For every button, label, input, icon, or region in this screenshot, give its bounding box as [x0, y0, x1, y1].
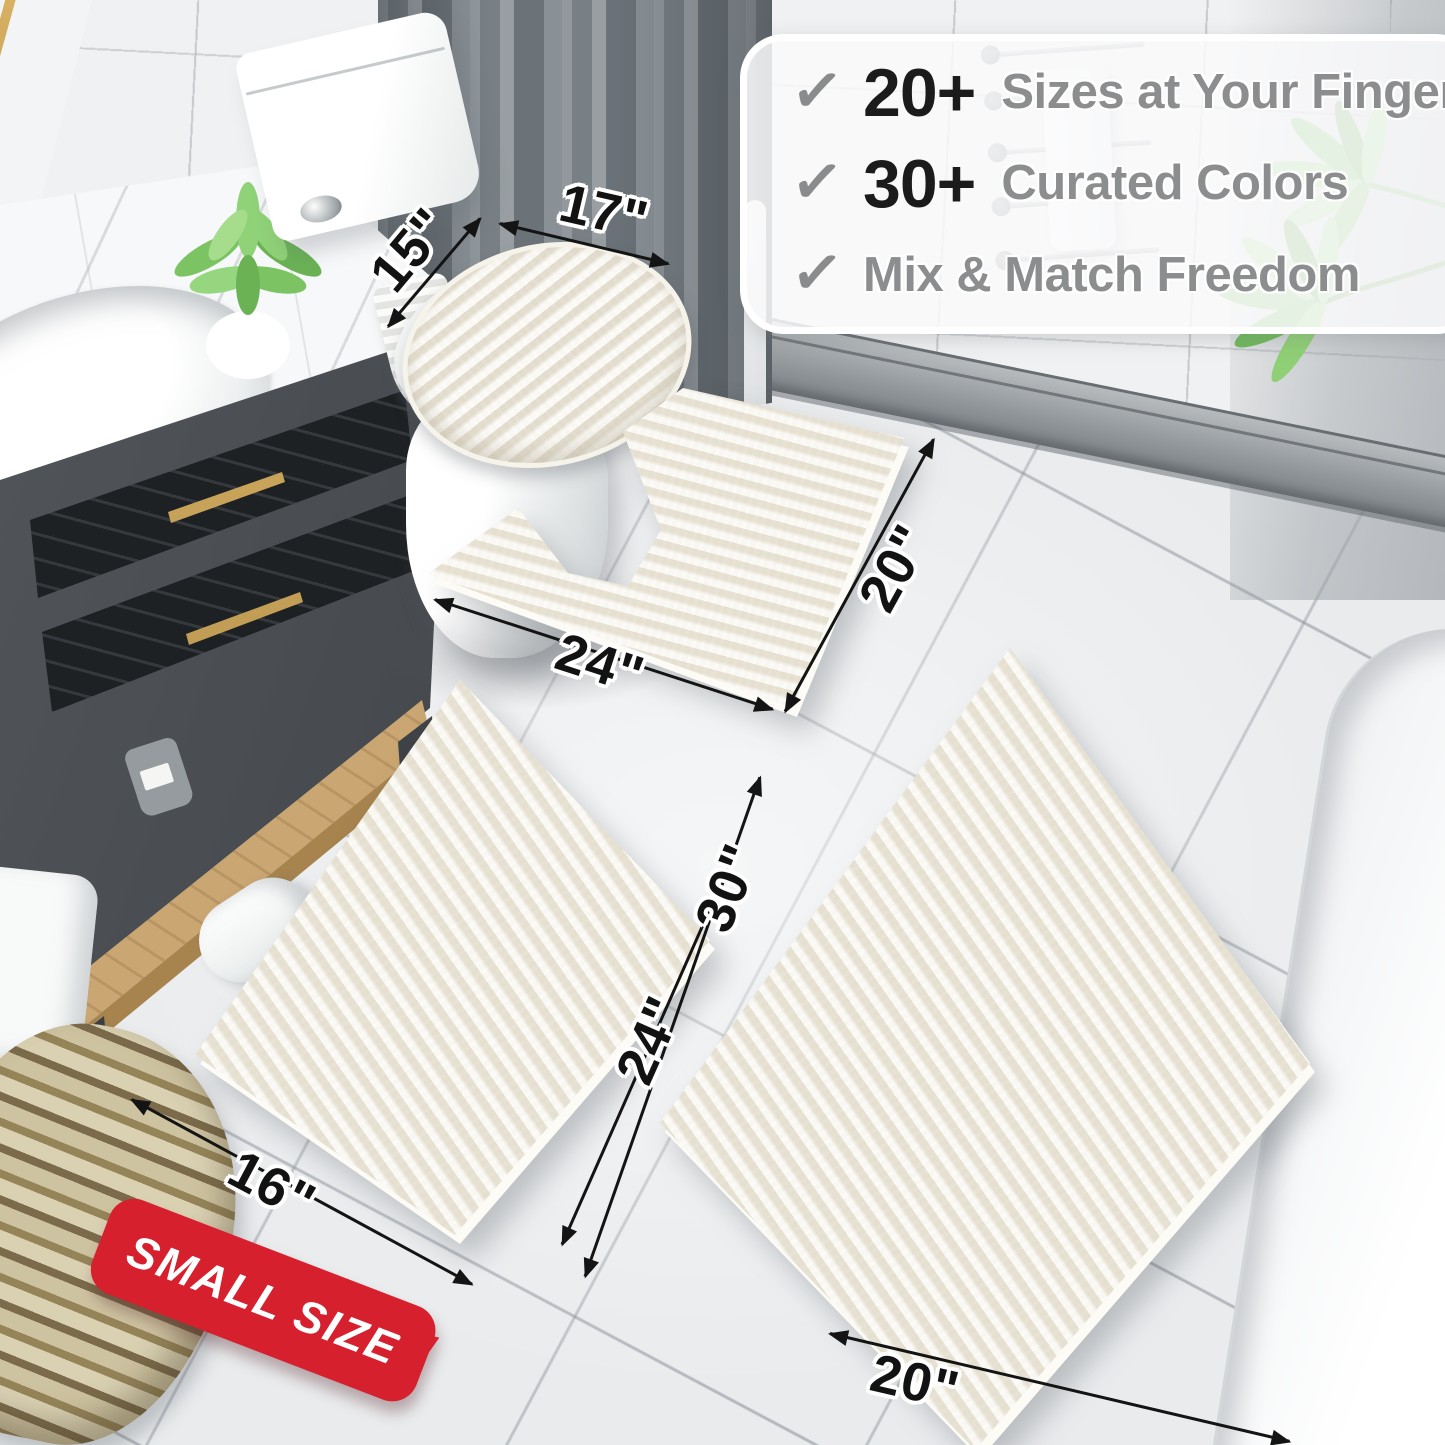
callout-row-colors: ✓ 30+ Curated Colors [791, 142, 1445, 225]
callout-row-mix-match: ✓ Mix & Match Freedom [791, 234, 1445, 317]
checkmark-icon: ✓ [788, 241, 866, 310]
callout-row-sizes: ✓ 20+ Sizes at Your Fingertips [791, 51, 1445, 134]
bath-rug-product-image: 17" 15" 24" 20" 16" 24" 30" 20" ✓ 20+ Si… [0, 0, 1445, 1445]
callout-label: Curated Colors [1001, 159, 1348, 208]
large-bath-rug [630, 618, 1330, 1445]
checkmark-icon: ✓ [788, 58, 866, 127]
callout-label: Sizes at Your Fingertips [1001, 68, 1445, 117]
callout-number: 20+ [863, 59, 975, 127]
callout-number: 30+ [863, 150, 975, 218]
callout-label: Mix & Match Freedom [863, 251, 1360, 300]
checkmark-icon: ✓ [788, 149, 866, 218]
bottle-label [139, 763, 174, 791]
large-rug-pile [630, 618, 1330, 1445]
feature-callout-box: ✓ 20+ Sizes at Your Fingertips ✓ 30+ Cur… [740, 34, 1445, 334]
